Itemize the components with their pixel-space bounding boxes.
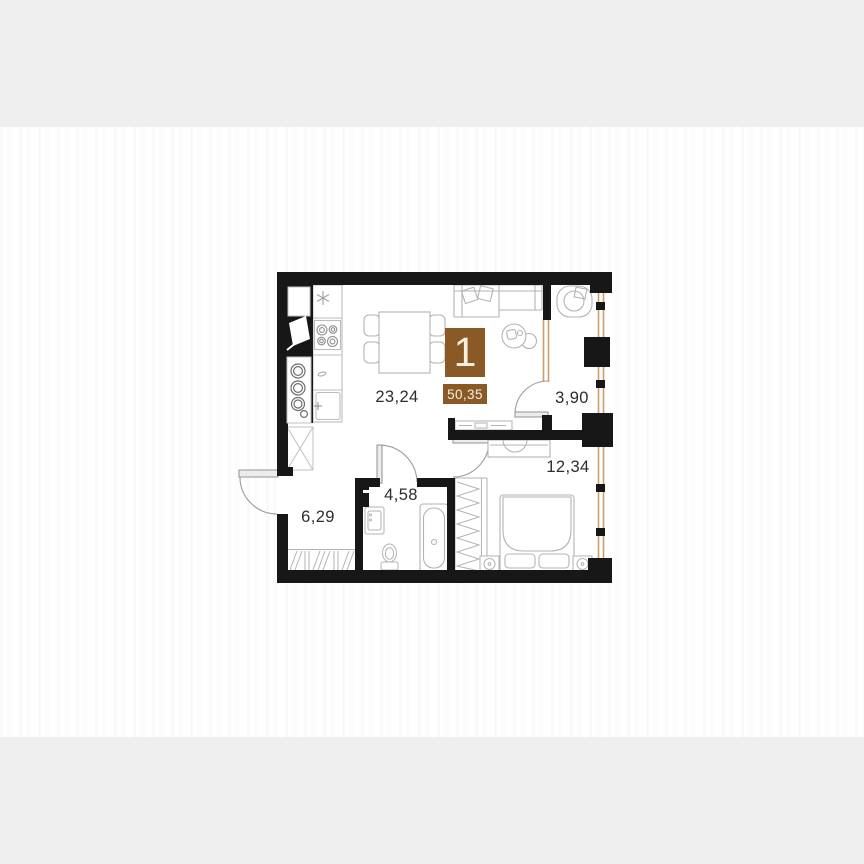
page-background: 23,24 3,90 12,34 4,58 6,29 1 50,35 bbox=[0, 0, 864, 864]
room-label-balcony: 3,90 bbox=[544, 390, 600, 407]
hall-cabinet-icon bbox=[287, 427, 313, 470]
toilet-icon bbox=[381, 544, 398, 570]
total-area-badge: 50,35 bbox=[443, 384, 487, 404]
rooms-count-value: 1 bbox=[454, 332, 477, 373]
entrance-door-icon bbox=[239, 470, 278, 514]
room-label-bathroom: 4,58 bbox=[373, 487, 429, 504]
total-area-value: 50,35 bbox=[447, 387, 483, 402]
room-label-hallway: 6,29 bbox=[290, 509, 346, 526]
washbasin-icon bbox=[365, 507, 384, 534]
room-label-bedroom: 12,34 bbox=[534, 459, 602, 476]
rooms-count-badge: 1 bbox=[445, 328, 485, 377]
floor-plan: 23,24 3,90 12,34 4,58 6,29 1 50,35 bbox=[0, 0, 864, 864]
nightstand-left-icon bbox=[480, 556, 499, 572]
bed-icon bbox=[500, 495, 574, 572]
vanity-icon bbox=[488, 440, 550, 457]
room-label-kitchen-living: 23,24 bbox=[352, 389, 442, 406]
tv-console-icon bbox=[455, 421, 512, 430]
bathtub-icon bbox=[420, 504, 448, 572]
kitchen-unit-icon bbox=[313, 285, 342, 422]
armchair-icon bbox=[557, 286, 592, 317]
floor-plan-drawing bbox=[0, 0, 864, 864]
